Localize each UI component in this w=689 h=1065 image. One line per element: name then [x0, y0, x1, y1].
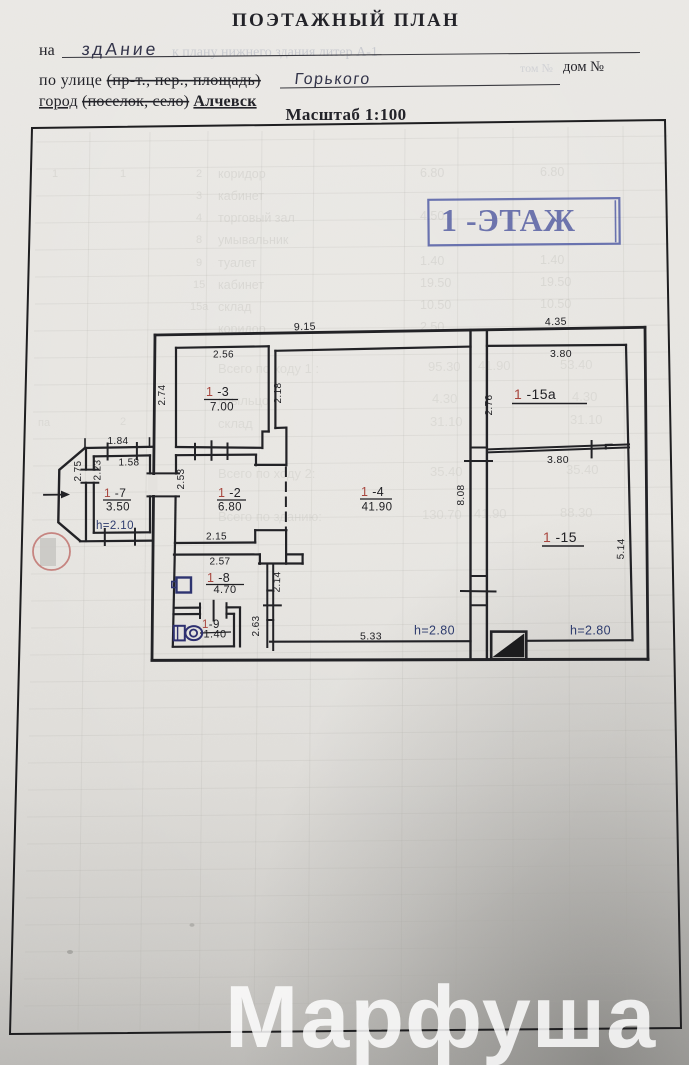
svg-text:2.23: 2.23	[93, 459, 104, 480]
svg-text:2.14: 2.14	[272, 571, 284, 592]
svg-text:7.00: 7.00	[210, 402, 234, 414]
svg-text:10.50: 10.50	[540, 297, 571, 311]
svg-text:умывальник: умывальник	[218, 233, 289, 247]
svg-text:том №: том №	[520, 61, 553, 75]
svg-text:15а: 15а	[190, 301, 209, 313]
svg-text:2: 2	[196, 168, 202, 180]
svg-text:2.74: 2.74	[157, 384, 168, 405]
svg-text:склад: склад	[218, 416, 253, 431]
svg-text:95.30: 95.30	[428, 359, 461, 374]
svg-text:па: па	[38, 417, 51, 429]
svg-text:Горького: Горького	[294, 70, 372, 88]
svg-text:2: 2	[120, 416, 126, 428]
svg-text:41.90: 41.90	[474, 506, 507, 521]
svg-text:Всего по ходу 2:: Всего по ходу 2:	[218, 466, 315, 481]
svg-text:8: 8	[196, 234, 202, 246]
svg-text:1.84: 1.84	[107, 436, 128, 447]
svg-text:h=2.10: h=2.10	[96, 520, 134, 532]
svg-text:2.75: 2.75	[73, 460, 84, 481]
svg-text:склад: склад	[218, 300, 252, 314]
svg-text:2.57: 2.57	[209, 557, 230, 568]
svg-text:35.40: 35.40	[566, 462, 599, 477]
svg-text:h=2.80: h=2.80	[414, 624, 455, 638]
svg-text:35.40: 35.40	[430, 464, 463, 479]
svg-text:10.50: 10.50	[420, 298, 451, 312]
svg-text:здАние: здАние	[81, 39, 160, 59]
svg-text:2.18: 2.18	[273, 382, 284, 403]
svg-text:6.80: 6.80	[540, 165, 564, 179]
svg-text:4.70: 4.70	[213, 584, 236, 596]
svg-text:1 -7: 1 -7	[104, 486, 126, 500]
svg-text:2.15: 2.15	[206, 532, 227, 543]
svg-text:по улице (пр-т., пер., площадь: по улице (пр-т., пер., площадь)	[39, 72, 261, 89]
svg-text:туалет: туалет	[218, 256, 257, 270]
svg-text:кабинет: кабинет	[218, 278, 264, 292]
svg-text:19.50: 19.50	[540, 275, 571, 289]
svg-text:1 -4: 1 -4	[361, 485, 384, 499]
svg-text:1 -2: 1 -2	[218, 486, 241, 500]
svg-text:4: 4	[196, 212, 202, 224]
svg-text:2.76: 2.76	[484, 394, 495, 415]
svg-text:31.10: 31.10	[430, 414, 463, 429]
svg-text:город (поселок, село) Алчевск: город (поселок, село) Алчевск	[39, 93, 257, 110]
svg-text:6.80: 6.80	[420, 166, 444, 180]
svg-text:31.10: 31.10	[570, 412, 603, 427]
svg-text:2.56: 2.56	[213, 350, 234, 361]
svg-text:1 -ЭТАЖ: 1 -ЭТАЖ	[441, 202, 575, 238]
svg-text:1 -15: 1 -15	[543, 529, 577, 545]
svg-text:1.40: 1.40	[420, 254, 444, 268]
svg-text:3.50: 3.50	[106, 502, 130, 514]
svg-text:6.80: 6.80	[218, 502, 242, 514]
svg-text:1.40: 1.40	[540, 253, 564, 267]
svg-text:4.30: 4.30	[572, 389, 597, 404]
svg-text:15: 15	[193, 279, 205, 291]
svg-text:9: 9	[196, 257, 202, 269]
svg-text:3.80: 3.80	[550, 348, 572, 360]
svg-text:1 -8: 1 -8	[207, 571, 230, 585]
svg-text:9.15: 9.15	[294, 321, 316, 334]
svg-text:2.53: 2.53	[176, 468, 187, 489]
svg-text:на: на	[39, 42, 55, 59]
svg-text:Масштаб 1:100: Масштаб 1:100	[285, 105, 406, 124]
svg-text:1 -15а: 1 -15а	[514, 386, 556, 402]
svg-text:кабинет: кабинет	[218, 189, 264, 203]
svg-text:5.33: 5.33	[360, 631, 382, 643]
svg-text:88.30: 88.30	[560, 505, 593, 520]
svg-text:3.80: 3.80	[547, 454, 569, 466]
svg-text:2.63: 2.63	[251, 615, 262, 636]
svg-text:1 -3: 1 -3	[206, 385, 229, 399]
svg-text:ПОЭТАЖНЫЙ ПЛАН: ПОЭТАЖНЫЙ ПЛАН	[232, 9, 460, 31]
svg-text:к плану нижнего здания литер А: к плану нижнего здания литер А-1	[172, 45, 378, 60]
svg-text:коридор: коридор	[218, 167, 266, 181]
svg-text:h=2.80: h=2.80	[570, 624, 611, 638]
svg-text:Марфуша: Марфуша	[225, 967, 656, 1065]
svg-text:4.35: 4.35	[545, 316, 567, 329]
svg-text:дом №: дом №	[563, 59, 604, 75]
svg-text:41.90: 41.90	[362, 502, 393, 514]
svg-text:4.30: 4.30	[432, 391, 457, 406]
svg-text:19.50: 19.50	[420, 276, 451, 290]
svg-text:1: 1	[120, 168, 126, 180]
svg-text:1: 1	[52, 168, 58, 180]
svg-text:торговый зал: торговый зал	[218, 211, 295, 225]
svg-text:3: 3	[196, 190, 202, 202]
svg-text:41.90: 41.90	[478, 358, 511, 373]
svg-text:5.14: 5.14	[616, 538, 628, 559]
svg-text:1.40: 1.40	[203, 629, 226, 641]
svg-text:8.08: 8.08	[456, 484, 467, 505]
svg-text:1.58: 1.58	[118, 458, 139, 469]
svg-text:130.70: 130.70	[422, 507, 462, 522]
